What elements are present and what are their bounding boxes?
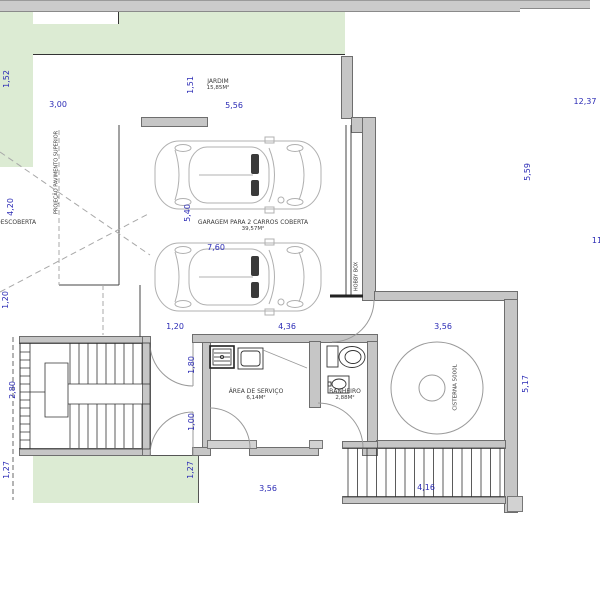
hobby-name: HOBBY BOX: [354, 217, 361, 337]
dimension-5-17: 5,17: [521, 367, 531, 401]
car-1-icon: [155, 137, 321, 213]
banheiro-area: 2,88M²: [285, 395, 405, 402]
dimension-1-51: 1,51: [186, 68, 196, 102]
car-2-icon: [155, 239, 321, 315]
dimension-3-00: 3,00: [41, 100, 75, 110]
dimension-3-56-top: 3,56: [426, 322, 460, 332]
projection-dashed-lines: [0, 130, 150, 500]
dimension-1-52: 1,52: [2, 62, 12, 96]
dimension-1-00: 1,00: [187, 405, 197, 439]
dimension-1-20-left: 1,20: [1, 283, 11, 317]
banheiro-name: BANHEIRO: [285, 388, 405, 395]
dimension-1-27-left: 1,27: [2, 453, 12, 487]
jardim-area: 15,85M²: [158, 85, 278, 92]
banheiro-label: BANHEIRO 2,88M²: [285, 388, 405, 402]
jardim-name: JARDIM: [158, 78, 278, 85]
cisterna-name: CISTERNA 5000L: [453, 328, 460, 448]
garagem-name: GARAGEM PARA 2 CARROS COBERTA: [193, 219, 313, 226]
floor-plan-canvas: JARDIM 15,85M² GARAGEM PARA 2 CARROS COB…: [0, 0, 600, 600]
stair-left: [20, 343, 150, 449]
dimension-4-16: 4,16: [409, 483, 443, 493]
dimension-4-36: 4,36: [270, 322, 304, 332]
dimension-12-37: 12,37: [568, 97, 600, 107]
dimension-5-56: 5,56: [217, 101, 251, 111]
dimension-1-20: 1,20: [158, 322, 192, 332]
garagem-area: 39,57M²: [193, 226, 313, 233]
dimension-11: 11: [580, 236, 600, 246]
counter-line: [263, 350, 307, 368]
projecao-name: PROJEÇÃO PAVIMENTO SUPERIOR: [54, 113, 61, 233]
dimension-2-80: 2,80: [8, 373, 18, 407]
washing-machine-icon: [238, 348, 263, 369]
laundry-sink-icon: [210, 346, 234, 368]
projecao-label: PROJEÇÃO PAVIMENTO SUPERIOR: [54, 113, 61, 233]
dimension-3-56-bottom: 3,56: [251, 484, 285, 494]
garagem-label: GARAGEM PARA 2 CARROS COBERTA 39,57M²: [193, 219, 313, 233]
dimension-5-59: 5,59: [523, 155, 533, 189]
plan-linework: [0, 0, 600, 600]
hobby-box-label: HOBBY BOX: [354, 217, 361, 337]
dimension-7-60: 7,60: [199, 243, 233, 253]
dimension-1-80: 1,80: [187, 348, 197, 382]
dimension-5-40: 5,40: [183, 196, 193, 230]
dimension-4-20: 4,20: [6, 190, 16, 224]
toilet-icon: [327, 346, 365, 368]
cisterna-label: CISTERNA 5000L: [453, 328, 460, 448]
dimension-1-27: 1,27: [186, 453, 196, 487]
jardim-label: JARDIM 15,85M²: [158, 78, 278, 92]
